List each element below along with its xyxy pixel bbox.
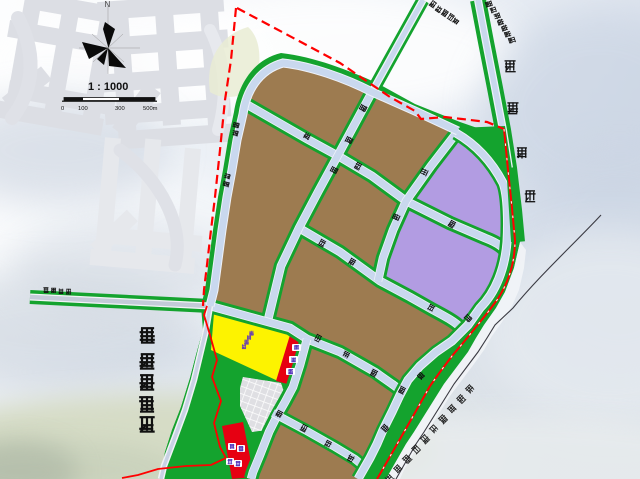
svg-text:0: 0 [61,106,64,112]
svg-text:500m: 500m [143,106,158,112]
svg-text:300: 300 [115,106,125,112]
svg-text:100: 100 [78,106,88,112]
svg-text:1 : 1000: 1 : 1000 [88,81,128,93]
svg-text:N: N [105,0,111,9]
